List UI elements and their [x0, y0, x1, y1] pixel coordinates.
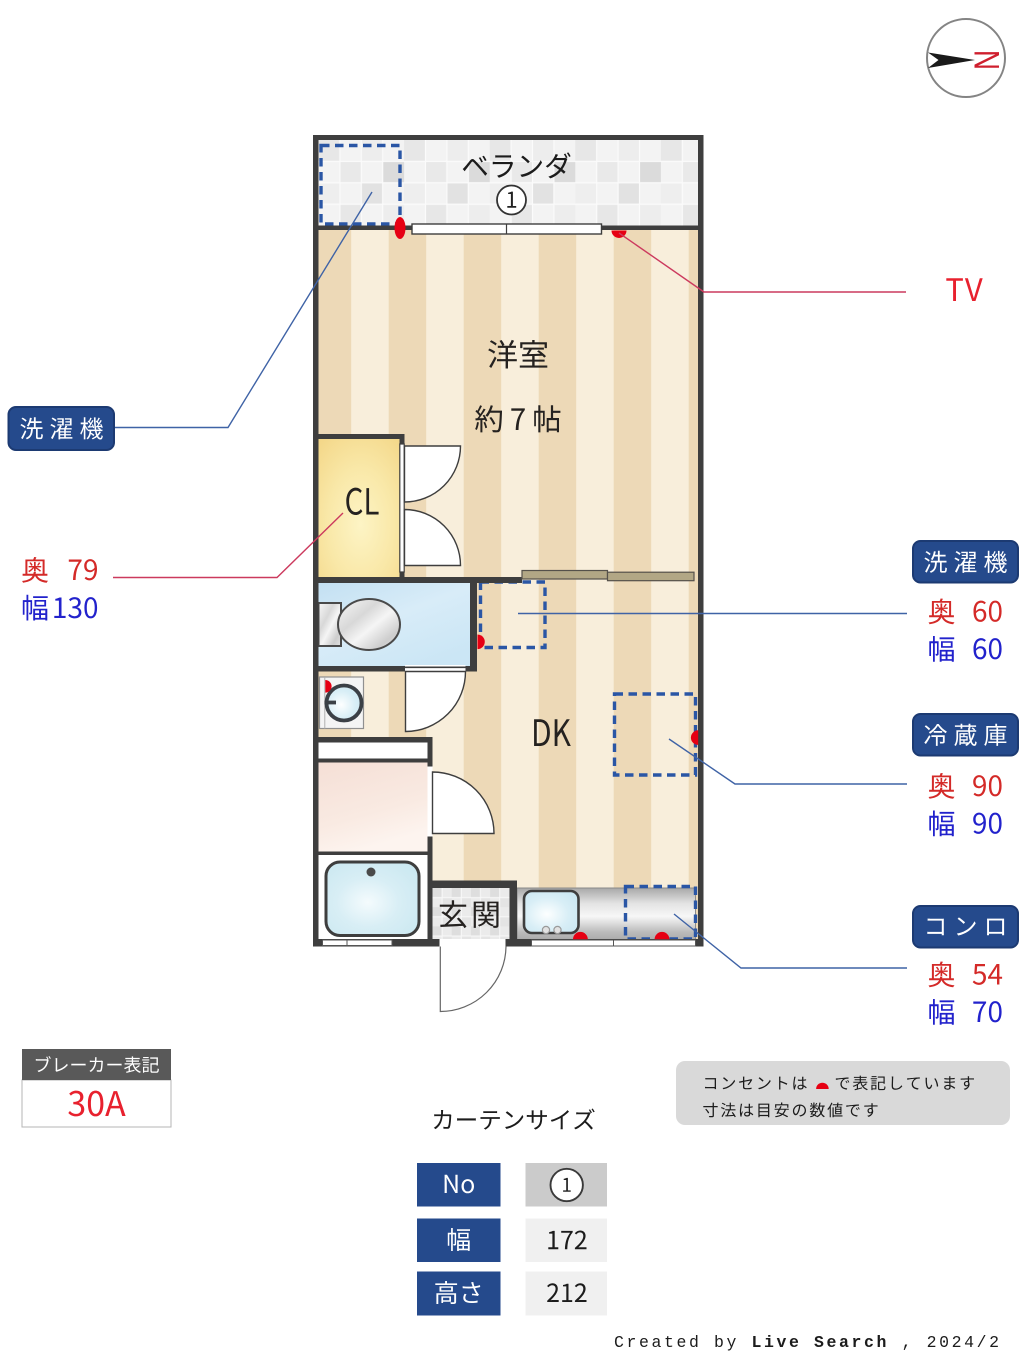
svg-text:N: N	[967, 50, 1007, 70]
svg-text:Created by Live Search , 2024/: Created by Live Search , 2024/2	[614, 1333, 1002, 1352]
